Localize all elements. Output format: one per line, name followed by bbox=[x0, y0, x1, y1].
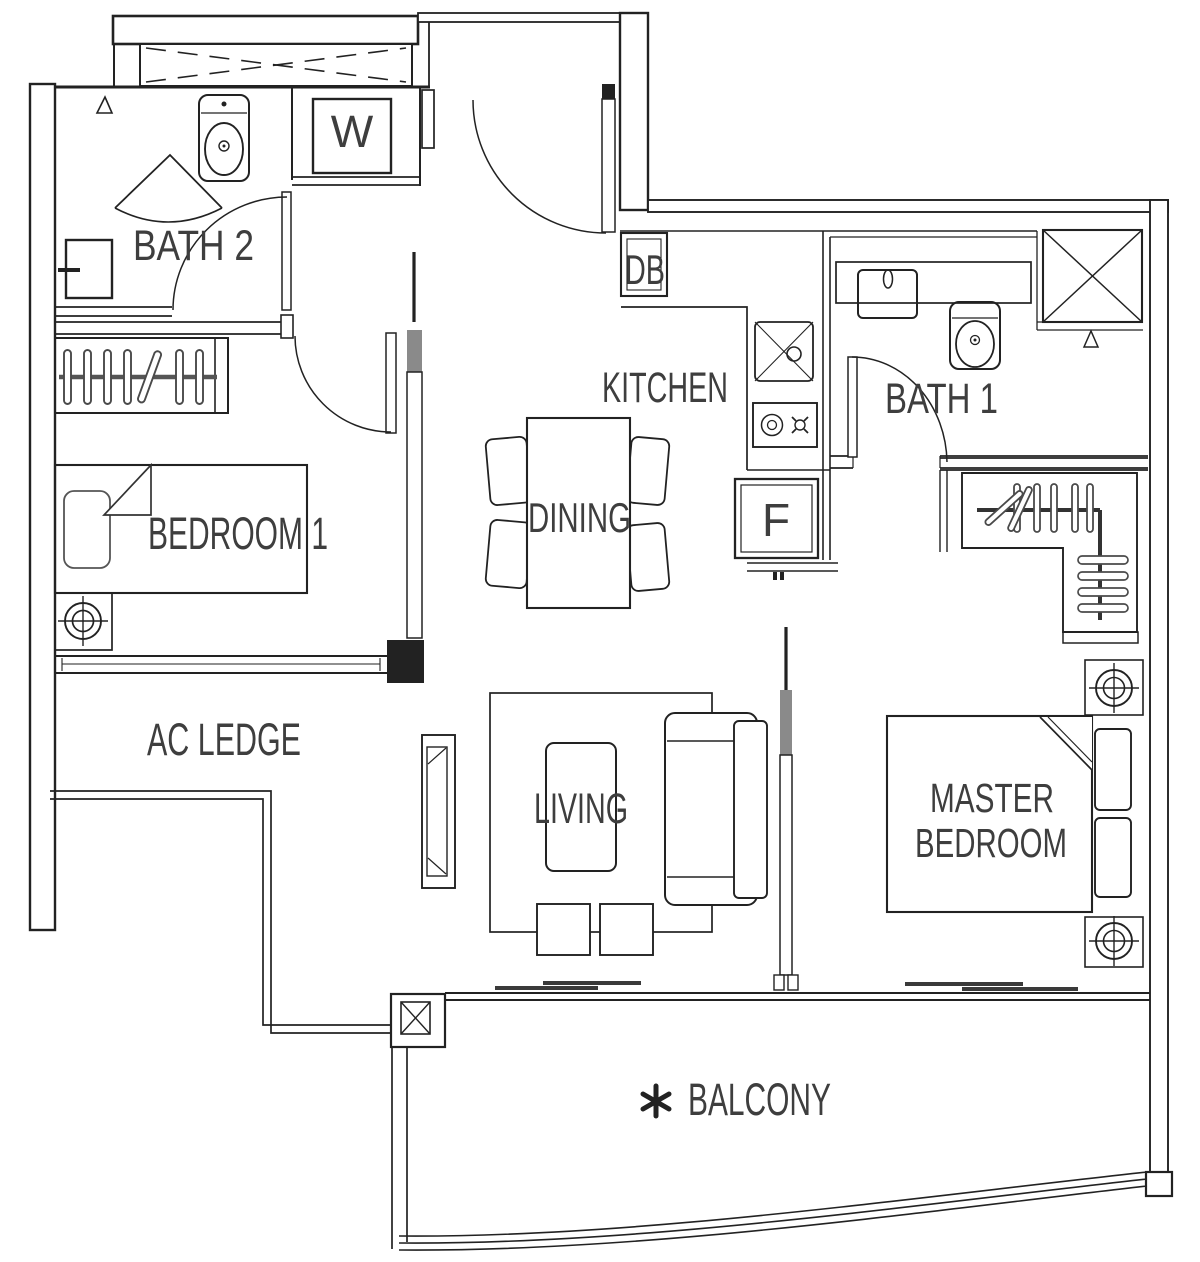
shelf bbox=[1078, 572, 1128, 580]
master-label-line2: BEDROOM bbox=[915, 820, 1067, 866]
bath2-door-leaf bbox=[282, 192, 291, 310]
cooker-hob-icon bbox=[753, 403, 817, 447]
hanger bbox=[84, 350, 91, 404]
dining-label: DINING bbox=[528, 494, 631, 541]
pillow bbox=[64, 491, 110, 568]
top-right-wall bbox=[648, 200, 1168, 212]
ac-ledge-label: AC LEDGE bbox=[147, 714, 301, 765]
room-living: LIVING bbox=[422, 693, 767, 955]
laundry-area: W bbox=[292, 87, 434, 186]
refrigerator-icon: F bbox=[735, 479, 818, 558]
asterisk-icon bbox=[643, 1086, 669, 1116]
hanger bbox=[1072, 484, 1078, 532]
shower-marker bbox=[1084, 331, 1098, 347]
toilet-icon bbox=[950, 302, 1000, 369]
vanity-sink-icon bbox=[58, 240, 112, 298]
shelf bbox=[1078, 604, 1128, 612]
living-label: LIVING bbox=[534, 785, 628, 833]
right-boundary-wall bbox=[1150, 200, 1168, 1175]
dining-set: DINING bbox=[485, 418, 670, 608]
bedroom1-door-leaf bbox=[386, 333, 396, 433]
balcony-label: BALCONY bbox=[688, 1074, 831, 1125]
tv-console-icon bbox=[422, 735, 455, 888]
hanger bbox=[1034, 484, 1040, 532]
bedroom1-window bbox=[55, 656, 387, 673]
basin-icon bbox=[858, 270, 917, 318]
wardrobe-l-shaped bbox=[962, 473, 1138, 643]
nightstand bbox=[1095, 818, 1131, 897]
bedroom1-right-wall bbox=[407, 372, 422, 638]
entry-door bbox=[473, 84, 615, 233]
balcony: BALCONY bbox=[391, 994, 1147, 1250]
entry-top-wall bbox=[418, 13, 648, 22]
hanger bbox=[176, 350, 183, 404]
structural-column bbox=[391, 994, 445, 1047]
shower-stall-icon bbox=[1037, 230, 1143, 347]
floorplan-drawing: BATH 2 W DB bbox=[0, 0, 1200, 1262]
ac-ledge: AC LEDGE bbox=[50, 714, 391, 1033]
entry-door-swing bbox=[473, 100, 606, 233]
sofa-icon bbox=[665, 713, 767, 905]
room-master: MASTER BEDROOM bbox=[887, 458, 1148, 967]
left-boundary-wall bbox=[30, 84, 55, 930]
column-target bbox=[1085, 916, 1143, 967]
chair bbox=[485, 519, 532, 588]
duct bbox=[422, 90, 434, 148]
entry-right-wall bbox=[620, 13, 648, 210]
living-master-partition bbox=[774, 627, 798, 990]
bedroom1-door bbox=[295, 333, 396, 433]
bedroom1-label: BEDROOM 1 bbox=[148, 508, 328, 559]
chair bbox=[626, 436, 670, 505]
wall-junction bbox=[387, 640, 424, 683]
floorplan-page: BATH 2 W DB bbox=[0, 0, 1200, 1262]
hanger bbox=[1087, 484, 1093, 532]
floor-trap-marker bbox=[97, 97, 112, 113]
column-target bbox=[1085, 660, 1143, 715]
ottoman bbox=[537, 904, 590, 955]
vanity-counter bbox=[836, 262, 1031, 303]
shelf bbox=[1078, 588, 1128, 596]
hanger bbox=[104, 350, 111, 404]
chair bbox=[626, 522, 670, 591]
db-label: DB bbox=[625, 246, 665, 293]
bedroom1-door-swing bbox=[295, 336, 391, 432]
toilet-icon bbox=[199, 95, 249, 181]
bath1-label: BATH 1 bbox=[885, 375, 998, 423]
wardrobe-icon bbox=[55, 338, 228, 413]
hanger bbox=[124, 350, 131, 404]
master-label-line1: MASTER bbox=[930, 775, 1054, 821]
wall-segment-gray bbox=[407, 330, 422, 372]
bath2-label: BATH 2 bbox=[133, 222, 254, 270]
right-wall-end-cap bbox=[1146, 1172, 1172, 1196]
nightstand bbox=[1095, 729, 1131, 810]
entry-door-leaf bbox=[602, 99, 615, 232]
corner-shower-icon bbox=[115, 155, 222, 222]
laundry-label: W bbox=[331, 106, 374, 157]
hanger bbox=[196, 350, 203, 404]
db-box: DB bbox=[621, 233, 667, 296]
column-target bbox=[55, 593, 112, 650]
ottoman bbox=[600, 904, 653, 955]
fridge-label: F bbox=[762, 494, 790, 546]
shelf bbox=[1078, 556, 1128, 564]
top-ledge bbox=[113, 16, 418, 44]
chair bbox=[485, 436, 532, 505]
room-bath2: BATH 2 bbox=[55, 87, 292, 316]
kitchen-label: KITCHEN bbox=[602, 364, 728, 412]
kitchen-sink-icon bbox=[755, 322, 813, 381]
bath1-door-leaf bbox=[848, 357, 857, 457]
hanger bbox=[64, 350, 71, 404]
room-bath1: BATH 1 bbox=[830, 230, 1148, 468]
sheet-fold bbox=[104, 465, 151, 515]
room-kitchen: DB F KITCHEN bbox=[602, 231, 838, 580]
hanger bbox=[1051, 484, 1057, 532]
